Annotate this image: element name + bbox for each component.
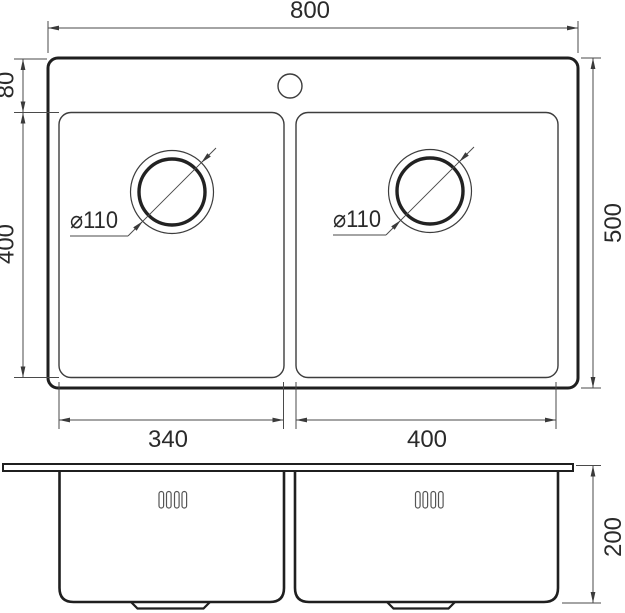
dim-overall-width-label: 800 (290, 0, 330, 24)
dim-bowl-height: 200 (562, 466, 625, 604)
overflow-slot (439, 492, 444, 509)
rim-section (3, 464, 573, 471)
dim-overall-depth-label: 500 (600, 203, 625, 243)
dim-right-bowl-width: 400 (296, 382, 556, 453)
dim-rim-offset-label: 80 (0, 72, 20, 99)
side-view: 200 (3, 464, 625, 609)
top-view: 800 80 400 500 340 (0, 0, 625, 453)
dim-bowl-length-label: 400 (0, 224, 20, 264)
dim-left-bowl-width-label: 340 (148, 426, 188, 453)
right-bowl-profile (295, 471, 558, 602)
leader-right-drain-diameter: ⌀110 (333, 147, 474, 235)
overflow-slot (423, 492, 428, 509)
left-bowl-outline (59, 113, 284, 378)
overflow-slot (167, 492, 172, 509)
overflow-slot (431, 492, 436, 509)
dim-overall-width: 800 (48, 0, 578, 53)
right-bowl-outline (296, 113, 558, 378)
overflow-slot (159, 492, 164, 509)
sink-rim-outline (48, 58, 578, 388)
right-overflow-slots (416, 492, 444, 509)
right-drain-diameter-label: ⌀110 (333, 206, 381, 233)
dim-bowl-length: 400 (0, 113, 59, 378)
dim-right-bowl-width-label: 400 (407, 426, 447, 453)
dim-rim-offset: 80 (0, 59, 59, 113)
left-drain-diameter-label: ⌀110 (70, 207, 118, 234)
dim-left-bowl-width: 340 (59, 382, 284, 453)
overflow-slot (416, 492, 421, 509)
overflow-slot (175, 492, 180, 509)
dim-bowl-height-label: 200 (600, 517, 625, 557)
leader-left-drain-diameter: ⌀110 (70, 148, 216, 236)
dim-overall-depth: 500 (581, 58, 625, 388)
faucet-hole (278, 74, 302, 98)
drawing-canvas: 800 80 400 500 340 (0, 0, 625, 613)
left-overflow-slots (159, 492, 187, 509)
left-bowl-profile (60, 471, 285, 602)
overflow-slot (182, 492, 187, 509)
sink-dimension-drawing: 800 80 400 500 340 (0, 0, 625, 613)
